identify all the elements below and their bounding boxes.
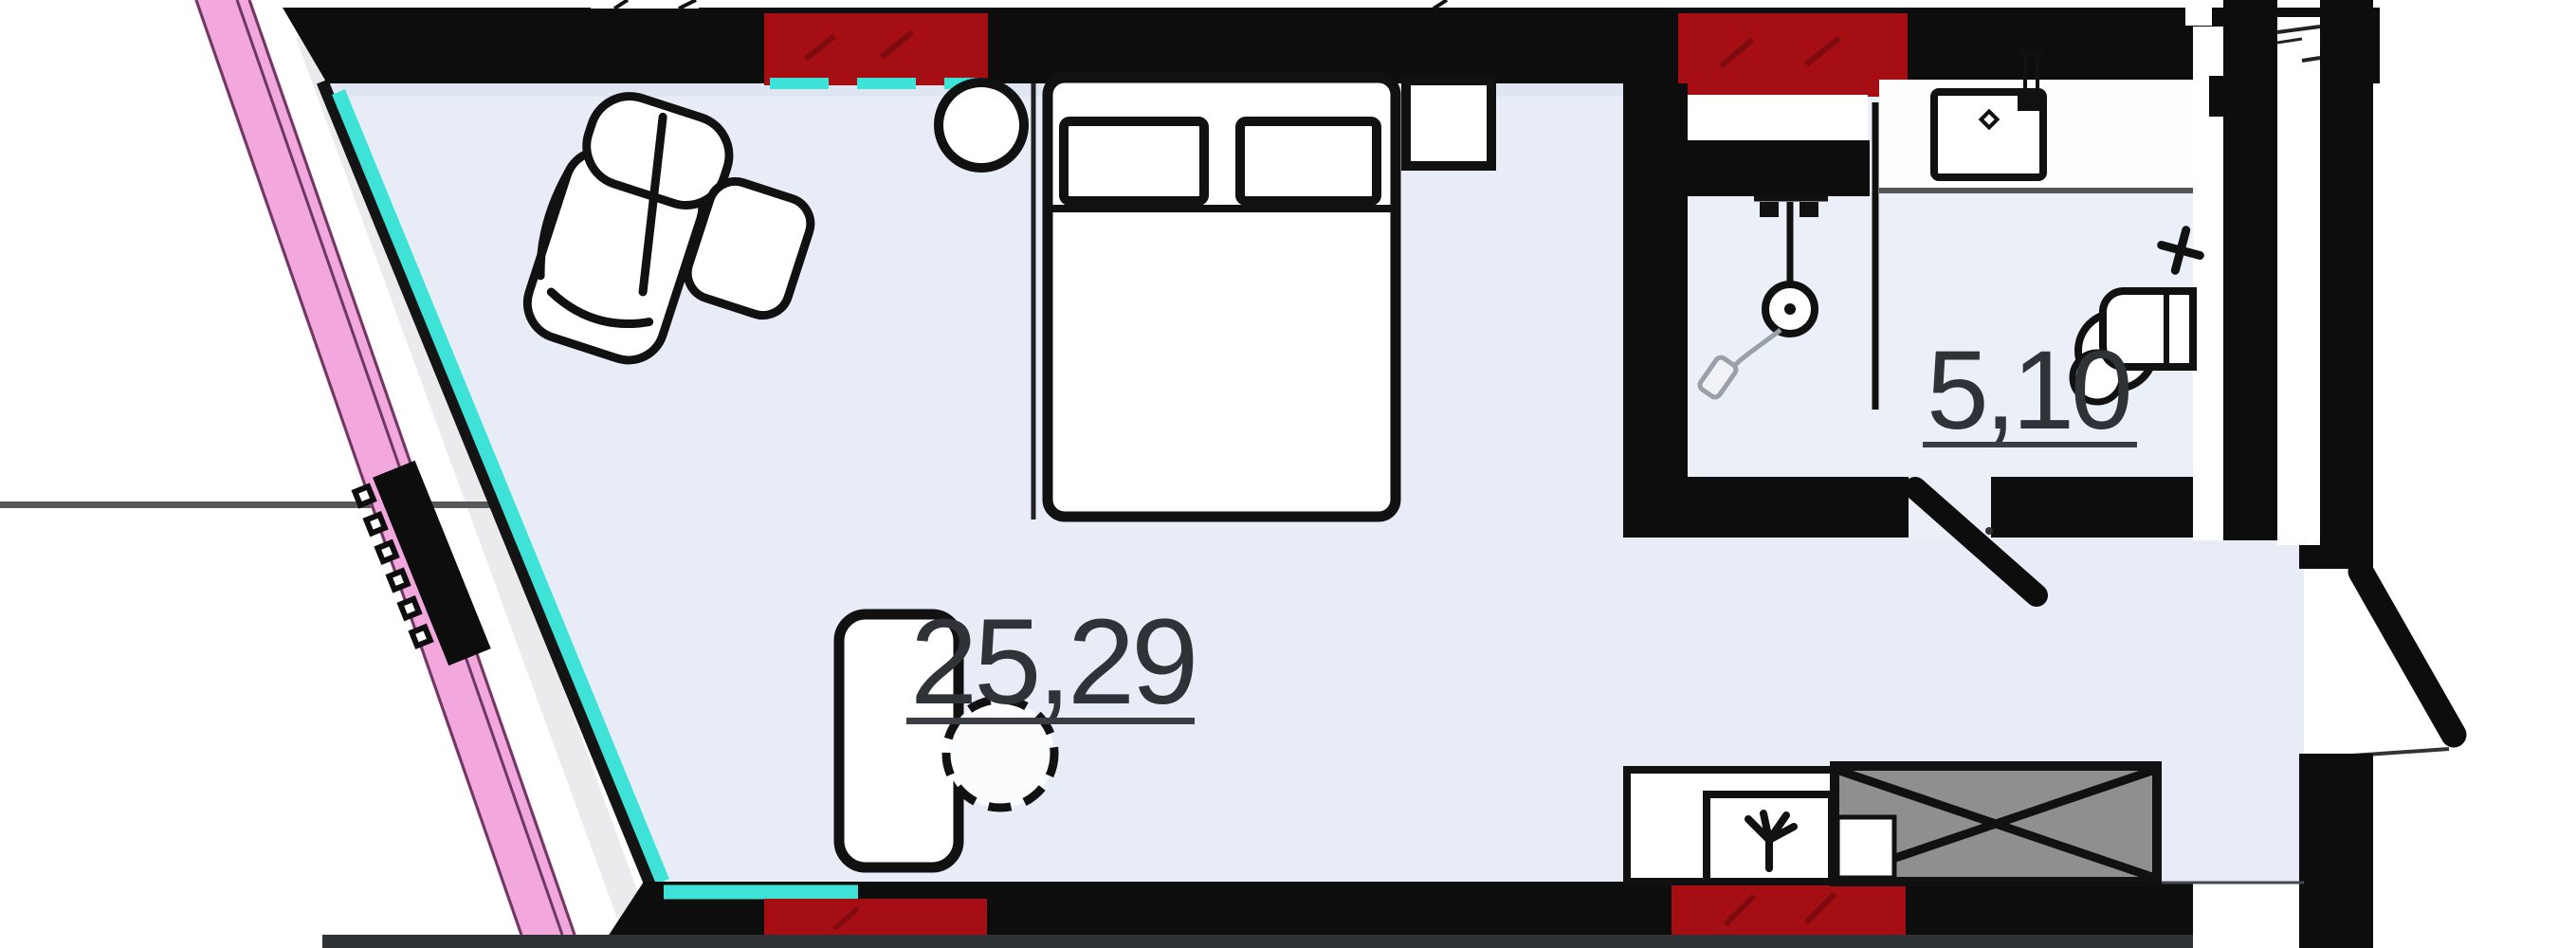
top-wall xyxy=(283,8,2380,83)
shower-niche xyxy=(1688,95,1868,140)
nightstand xyxy=(1406,81,1491,166)
faucet-base xyxy=(2018,90,2042,111)
bathroom-partition-wall xyxy=(1623,83,1688,538)
sink-box-notch xyxy=(1837,817,1894,878)
bathroom-area-label: 5,10 xyxy=(1923,328,2137,453)
floor-plan-drawing: 25,29 5,10 xyxy=(0,0,2576,948)
bathroom-label-underline xyxy=(1923,442,2137,447)
floor-plan-canvas: 25,29 5,10 xyxy=(0,0,2576,948)
bathroom-door-dot xyxy=(1985,527,1993,535)
kitchen-counter xyxy=(1627,770,1835,882)
pillow xyxy=(1064,121,1204,201)
wet-zone-wall-top-left xyxy=(764,13,988,85)
pillow xyxy=(1240,121,1377,201)
double-bed xyxy=(1048,78,1396,517)
bottom-edge-bar xyxy=(322,935,2193,948)
kitchen-sink-box xyxy=(1835,766,2157,882)
balcony-door-leaf xyxy=(2361,572,2454,735)
bathroom-area-value: 5,10 xyxy=(1927,328,2129,453)
living-room-label-underline xyxy=(906,718,1195,724)
entry-corridor-walls xyxy=(2193,0,2373,569)
pendant-lamp xyxy=(939,82,1024,168)
living-room-area-value: 25,29 xyxy=(910,594,1195,730)
bottom-right-wall-post xyxy=(2299,754,2373,948)
bathroom-bottom-wall-left xyxy=(1688,477,1909,538)
wet-zone-wall-top-right xyxy=(1678,13,1908,97)
wet-zone-wall-bottom-left xyxy=(764,899,987,937)
living-room-area-label: 25,29 xyxy=(906,594,1195,730)
shower-niche-wall xyxy=(1688,140,1870,196)
